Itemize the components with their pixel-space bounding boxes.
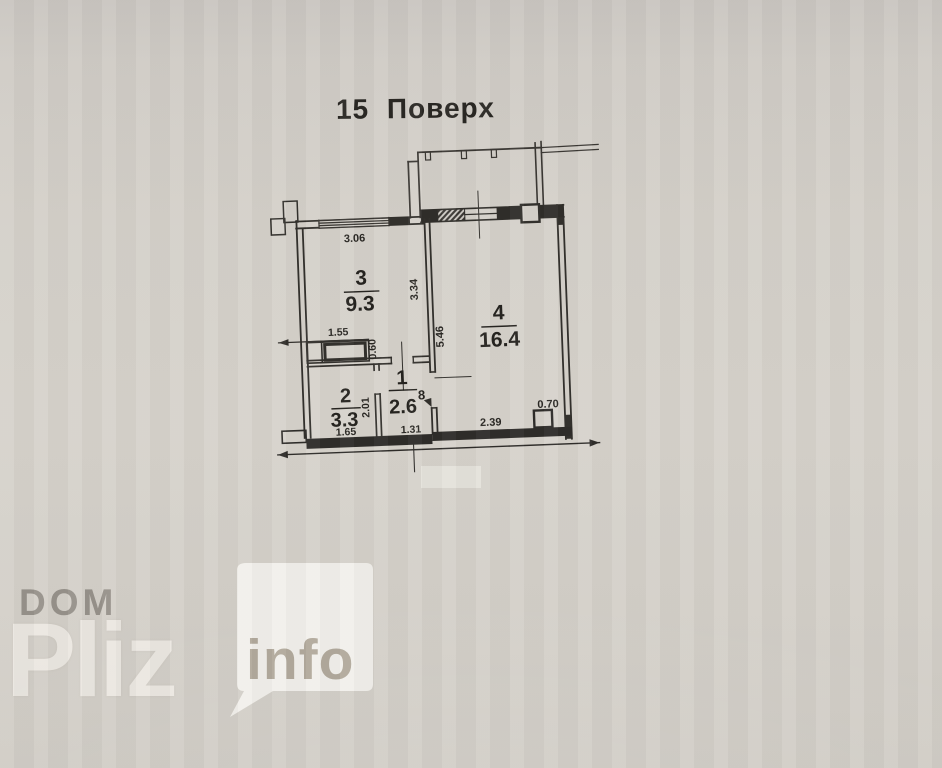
axis-line-bottom [414, 445, 415, 472]
room1-area: 2.6 [389, 396, 418, 419]
watermark-pliz: Pliz [6, 601, 175, 721]
room3-number: 3 [355, 266, 368, 289]
room-labels: 3 9.3 4 16.4 2 3.3 1 2.6 8 [325, 261, 524, 432]
dim-hall-width: 1.31 [401, 423, 422, 436]
wardrobe [325, 343, 366, 360]
dimension-labels: 3.06 3.34 5.46 1.55 0.60 2.01 1.65 1.31 … [324, 225, 560, 439]
balcony [408, 139, 601, 217]
column-top [521, 204, 540, 222]
dim-room4-bottom: 2.39 [480, 416, 502, 429]
room4-area: 16.4 [479, 328, 521, 353]
scan-artifact [421, 466, 481, 488]
window [319, 218, 389, 229]
room3-area: 9.3 [345, 292, 375, 316]
dim-room2-depth: 2.01 [360, 397, 373, 418]
hall-mark: 8 [418, 387, 426, 402]
dim-column: 0.70 [537, 398, 559, 411]
dim-room3-depth: 3.34 [408, 278, 421, 301]
room4-number: 4 [492, 301, 505, 324]
arrow-right [589, 439, 599, 447]
dim-closet-width: 1.55 [328, 326, 349, 339]
outer-walls [270, 191, 572, 450]
dim-opening: 0.60 [366, 339, 379, 360]
dim-room4-depth: 5.46 [434, 326, 447, 348]
room1-number: 1 [396, 367, 408, 389]
dim-window-top: 3.06 [344, 232, 366, 245]
room2-number: 2 [340, 385, 352, 407]
axis-line-door [435, 376, 471, 377]
floor-plan: 3 9.3 4 16.4 2 3.3 1 2.6 8 3.06 3.34 5.4… [266, 139, 610, 477]
column-bottom [534, 410, 553, 428]
dim-room2-width: 1.65 [336, 426, 357, 439]
arrow-left-small [278, 339, 288, 346]
watermark-badge: info [246, 627, 354, 693]
arrow-left [278, 451, 288, 459]
